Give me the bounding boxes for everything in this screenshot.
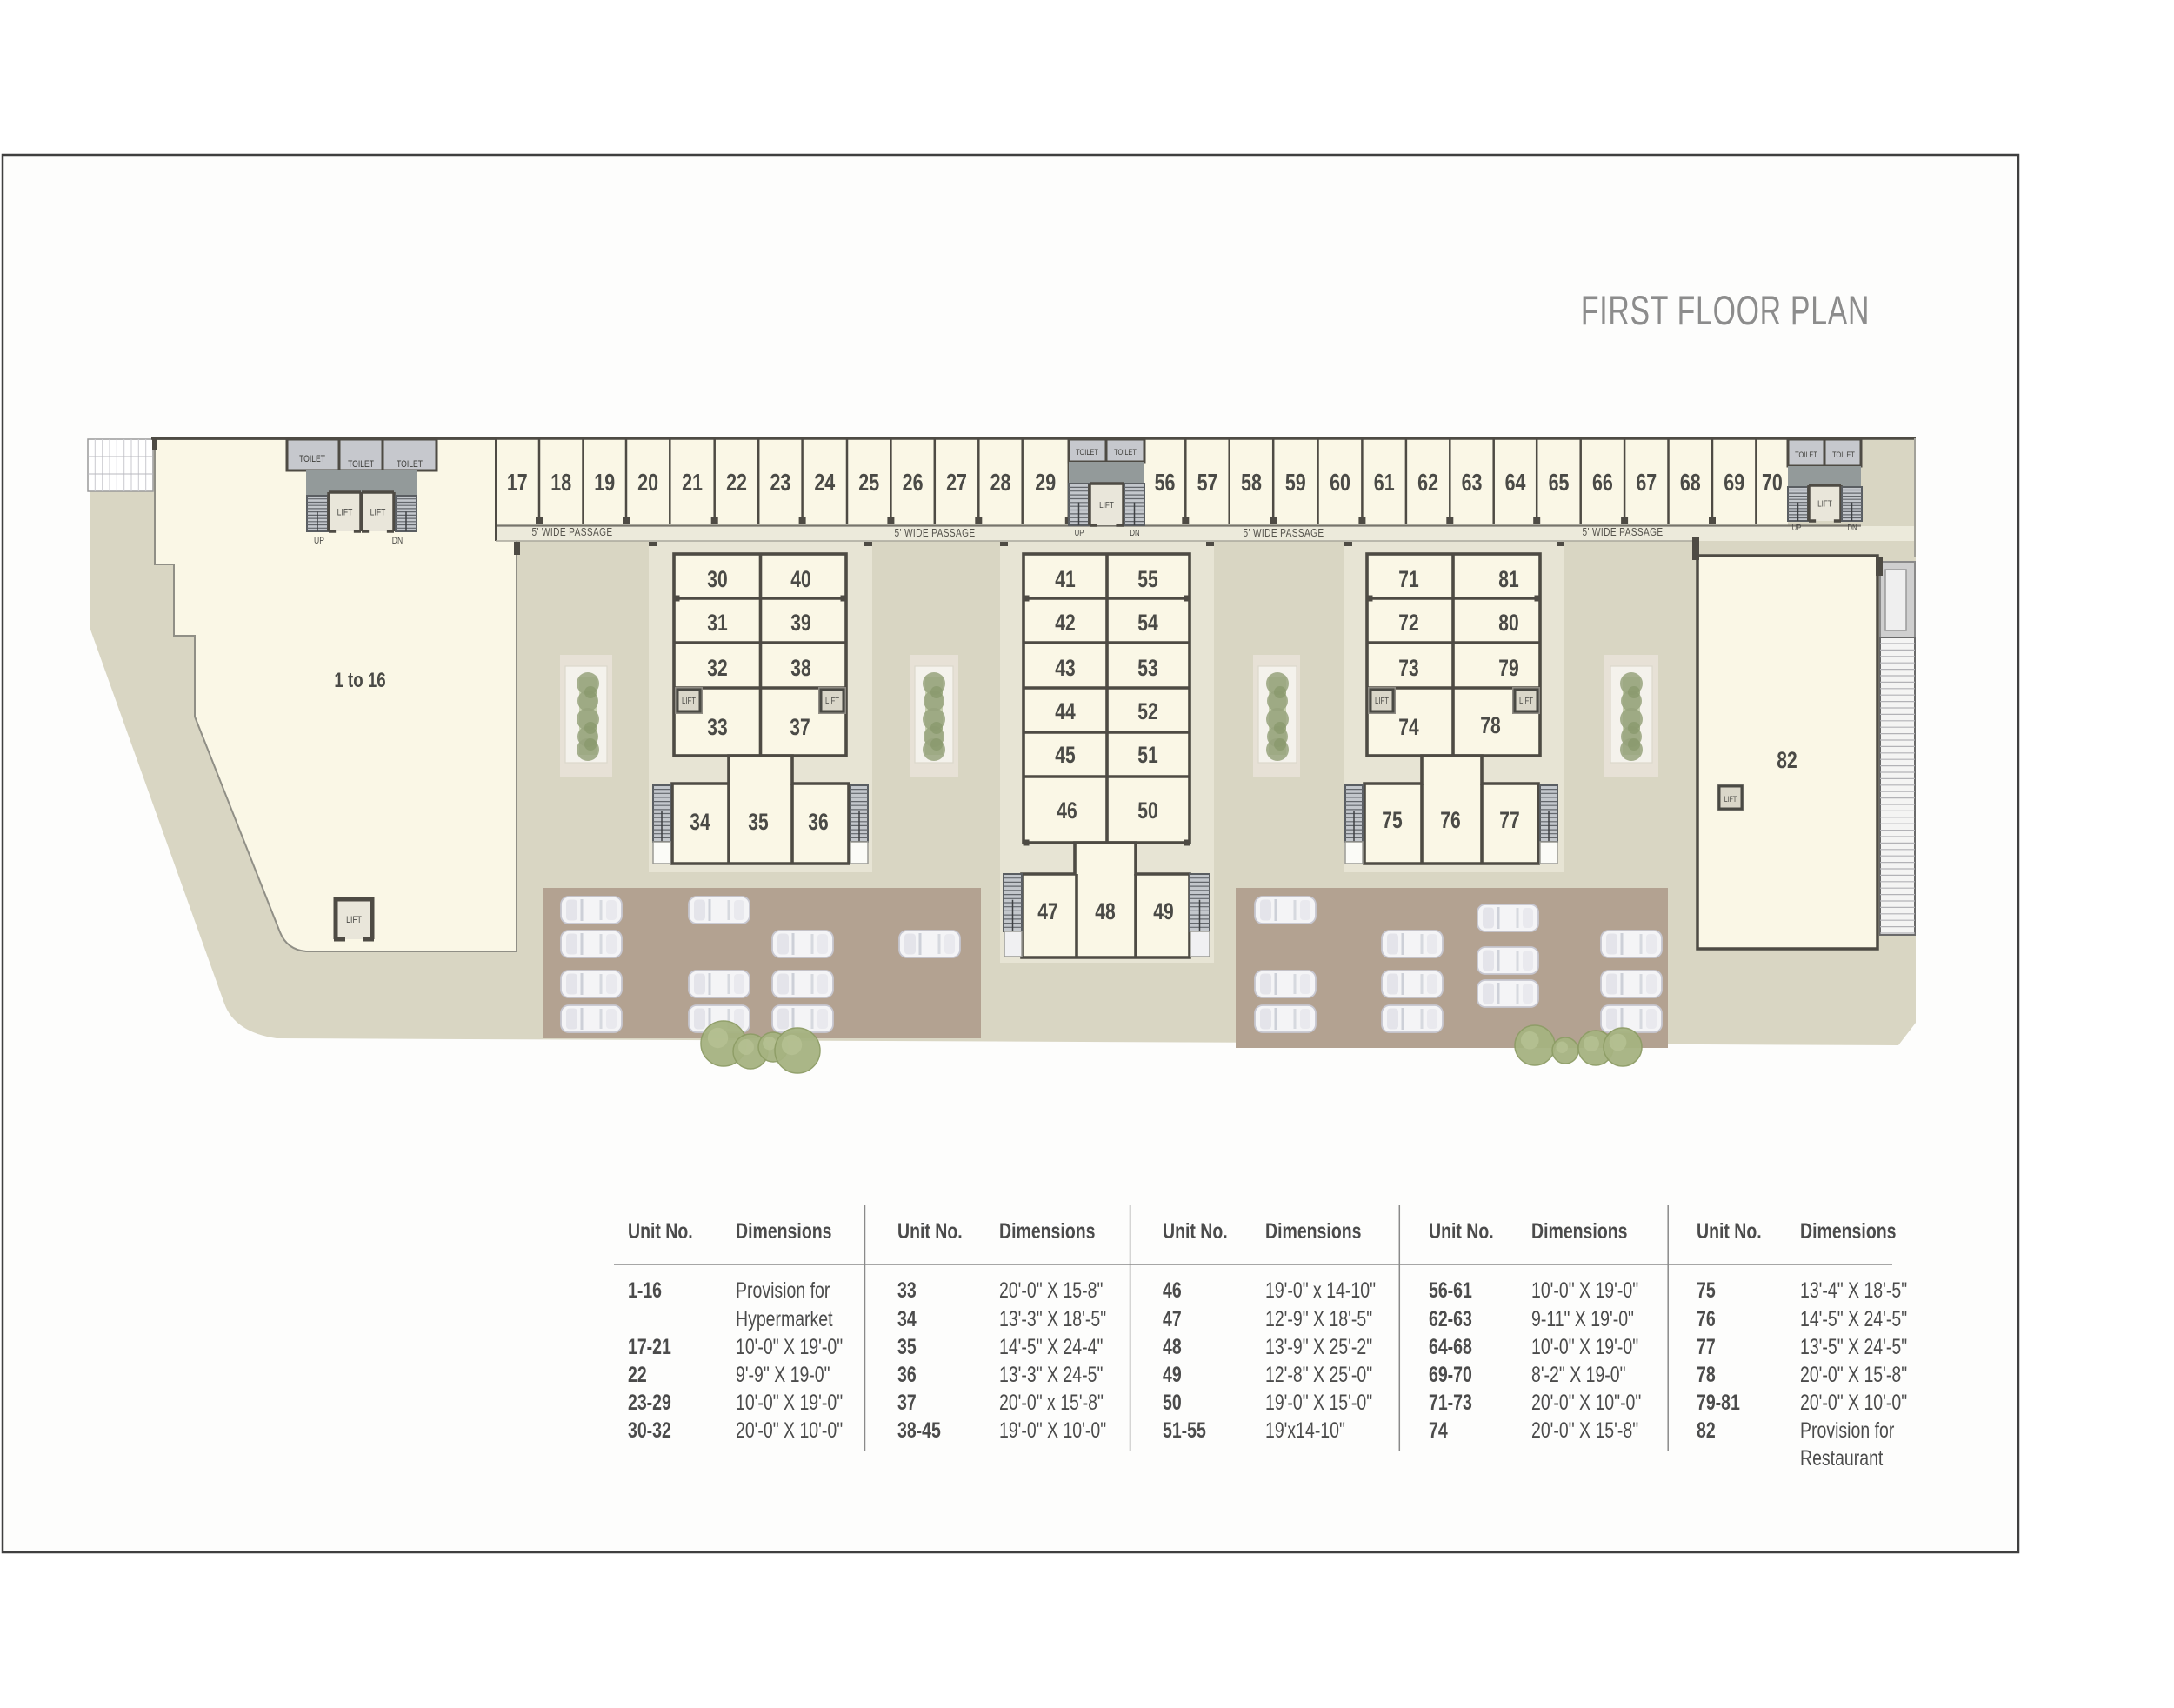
svg-text:5' WIDE PASSAGE: 5' WIDE PASSAGE <box>1582 526 1663 538</box>
svg-text:LIFT: LIFT <box>346 915 362 925</box>
svg-text:55: 55 <box>1137 567 1157 593</box>
svg-text:LIFT: LIFT <box>337 508 353 518</box>
svg-text:76: 76 <box>1697 1307 1716 1331</box>
svg-text:38: 38 <box>790 656 810 682</box>
svg-text:10'-0" X 19'-0": 10'-0" X 19'-0" <box>1531 1278 1638 1303</box>
svg-text:UP: UP <box>1075 528 1084 537</box>
svg-text:34: 34 <box>897 1307 917 1331</box>
svg-text:60: 60 <box>1330 470 1350 497</box>
svg-text:71: 71 <box>1398 567 1418 593</box>
svg-text:29: 29 <box>1035 470 1056 497</box>
svg-text:24: 24 <box>814 470 835 497</box>
svg-text:1 to 16: 1 to 16 <box>334 669 385 692</box>
svg-text:TOILET: TOILET <box>1832 450 1855 459</box>
svg-text:75: 75 <box>1382 808 1402 834</box>
svg-text:74: 74 <box>1398 715 1419 741</box>
svg-text:43: 43 <box>1055 656 1075 682</box>
svg-text:20'-0" X 10"-0": 20'-0" X 10"-0" <box>1531 1391 1641 1415</box>
svg-text:TOILET: TOILET <box>1114 447 1137 457</box>
svg-text:DN: DN <box>1130 528 1139 537</box>
svg-text:13'-3" X 24-5": 13'-3" X 24-5" <box>999 1363 1103 1387</box>
svg-text:13'-3" X 18'-5": 13'-3" X 18'-5" <box>999 1307 1106 1331</box>
svg-text:TOILET: TOILET <box>348 459 374 470</box>
svg-text:LIFT: LIFT <box>370 508 386 518</box>
svg-text:54: 54 <box>1137 610 1158 637</box>
svg-text:20'-0" x 15'-8": 20'-0" x 15'-8" <box>999 1391 1104 1415</box>
svg-text:LIFT: LIFT <box>682 696 696 705</box>
svg-text:33: 33 <box>897 1278 917 1303</box>
svg-text:22: 22 <box>628 1363 647 1387</box>
svg-text:75: 75 <box>1697 1278 1716 1303</box>
svg-text:13'-9" X 25'-2": 13'-9" X 25'-2" <box>1265 1335 1372 1359</box>
svg-text:67: 67 <box>1636 470 1657 497</box>
svg-text:Dimensions: Dimensions <box>1800 1219 1896 1244</box>
svg-text:25: 25 <box>858 470 879 497</box>
svg-text:LIFT: LIFT <box>1817 497 1832 508</box>
svg-text:20'-0" X 15'-8": 20'-0" X 15'-8" <box>1800 1363 1907 1387</box>
svg-text:56: 56 <box>1155 470 1176 497</box>
svg-text:LIFT: LIFT <box>825 696 839 705</box>
svg-text:37: 37 <box>897 1391 917 1415</box>
svg-text:9'-9" X 19-0": 9'-9" X 19-0" <box>736 1363 830 1387</box>
svg-text:68: 68 <box>1680 470 1701 497</box>
svg-text:47: 47 <box>1163 1307 1182 1331</box>
svg-text:48: 48 <box>1163 1335 1182 1359</box>
svg-text:26: 26 <box>903 470 924 497</box>
svg-text:19'-0" x 14-10": 19'-0" x 14-10" <box>1265 1278 1376 1303</box>
svg-text:65: 65 <box>1549 470 1570 497</box>
svg-text:30-32: 30-32 <box>628 1418 671 1443</box>
svg-text:TOILET: TOILET <box>1795 450 1817 459</box>
svg-text:76: 76 <box>1440 808 1460 834</box>
svg-text:69: 69 <box>1724 470 1744 497</box>
svg-text:14'-5" X 24'-5": 14'-5" X 24'-5" <box>1800 1307 1907 1331</box>
svg-text:19: 19 <box>594 470 615 497</box>
svg-text:10'-0" X 19'-0": 10'-0" X 19'-0" <box>736 1335 843 1359</box>
svg-text:70: 70 <box>1762 470 1783 497</box>
svg-text:12'-9" X 18'-5": 12'-9" X 18'-5" <box>1265 1307 1372 1331</box>
svg-text:39: 39 <box>790 610 810 637</box>
svg-text:74: 74 <box>1429 1418 1448 1443</box>
svg-text:35: 35 <box>897 1335 917 1359</box>
svg-text:Unit No.: Unit No. <box>1163 1219 1228 1244</box>
svg-text:17: 17 <box>507 470 528 497</box>
svg-text:5' WIDE PASSAGE: 5' WIDE PASSAGE <box>894 527 975 539</box>
svg-text:TOILET: TOILET <box>299 454 325 464</box>
svg-text:Unit No.: Unit No. <box>628 1219 693 1244</box>
svg-text:TOILET: TOILET <box>397 459 423 470</box>
svg-text:56-61: 56-61 <box>1429 1278 1472 1303</box>
svg-text:33: 33 <box>707 715 727 741</box>
svg-text:Unit No.: Unit No. <box>897 1219 963 1244</box>
svg-text:27: 27 <box>946 470 967 497</box>
svg-text:FIRST FLOOR PLAN: FIRST FLOOR PLAN <box>1581 288 1870 334</box>
svg-text:45: 45 <box>1055 743 1075 769</box>
svg-text:20: 20 <box>637 470 658 497</box>
svg-text:12'-8" X 25'-0": 12'-8" X 25'-0" <box>1265 1363 1372 1387</box>
svg-text:47: 47 <box>1037 899 1057 925</box>
svg-text:Restaurant: Restaurant <box>1800 1446 1884 1471</box>
svg-text:Unit No.: Unit No. <box>1697 1219 1762 1244</box>
svg-text:13'-4" X 18'-5": 13'-4" X 18'-5" <box>1800 1278 1907 1303</box>
svg-text:Dimensions: Dimensions <box>1265 1219 1361 1244</box>
svg-text:Unit No.: Unit No. <box>1429 1219 1494 1244</box>
svg-text:77: 77 <box>1697 1335 1716 1359</box>
svg-text:79: 79 <box>1498 656 1518 682</box>
svg-text:31: 31 <box>707 610 727 637</box>
svg-text:50: 50 <box>1163 1391 1182 1415</box>
svg-text:Provision for: Provision for <box>736 1278 830 1303</box>
svg-text:78: 78 <box>1697 1363 1716 1387</box>
svg-text:5' WIDE PASSAGE: 5' WIDE PASSAGE <box>1243 527 1324 539</box>
svg-text:50: 50 <box>1137 798 1157 824</box>
svg-text:73: 73 <box>1398 656 1418 682</box>
svg-text:44: 44 <box>1055 699 1076 725</box>
svg-text:9-11" X 19'-0": 9-11" X 19'-0" <box>1531 1307 1634 1331</box>
svg-text:79-81: 79-81 <box>1697 1391 1740 1415</box>
svg-text:53: 53 <box>1137 656 1157 682</box>
svg-text:78: 78 <box>1480 713 1500 739</box>
svg-text:62-63: 62-63 <box>1429 1307 1472 1331</box>
svg-text:42: 42 <box>1055 610 1075 637</box>
svg-text:Dimensions: Dimensions <box>999 1219 1095 1244</box>
svg-text:52: 52 <box>1137 699 1157 725</box>
svg-text:20'-0" X 10'-0": 20'-0" X 10'-0" <box>1800 1391 1907 1415</box>
svg-text:28: 28 <box>990 470 1011 497</box>
svg-text:23: 23 <box>770 470 790 497</box>
svg-text:UP: UP <box>314 536 324 546</box>
svg-text:Dimensions: Dimensions <box>1531 1219 1627 1244</box>
svg-text:Dimensions: Dimensions <box>736 1219 831 1244</box>
svg-text:49: 49 <box>1153 899 1173 925</box>
svg-text:14'-5" X 24-4": 14'-5" X 24-4" <box>999 1335 1103 1359</box>
svg-text:17-21: 17-21 <box>628 1335 671 1359</box>
svg-text:36: 36 <box>808 810 828 836</box>
svg-text:71-73: 71-73 <box>1429 1391 1472 1415</box>
svg-text:64-68: 64-68 <box>1429 1335 1472 1359</box>
svg-text:19'-0" X 10'-0": 19'-0" X 10'-0" <box>999 1418 1106 1443</box>
svg-text:18: 18 <box>550 470 571 497</box>
svg-text:69-70: 69-70 <box>1429 1363 1472 1387</box>
svg-text:59: 59 <box>1285 470 1306 497</box>
svg-text:61: 61 <box>1374 470 1395 497</box>
svg-text:5' WIDE PASSAGE: 5' WIDE PASSAGE <box>531 526 612 538</box>
svg-text:34: 34 <box>690 810 710 836</box>
svg-text:46: 46 <box>1057 798 1077 824</box>
svg-text:UP: UP <box>1792 523 1802 532</box>
svg-text:LIFT: LIFT <box>1375 696 1389 705</box>
svg-text:51: 51 <box>1137 743 1157 769</box>
svg-text:40: 40 <box>790 567 810 593</box>
svg-text:TOILET: TOILET <box>1076 447 1098 457</box>
svg-text:10'-0" X 19'-0": 10'-0" X 19'-0" <box>1531 1335 1638 1359</box>
svg-text:10'-0" X 19'-0": 10'-0" X 19'-0" <box>736 1391 843 1415</box>
svg-text:30: 30 <box>707 567 727 593</box>
svg-text:57: 57 <box>1197 470 1218 497</box>
svg-text:38-45: 38-45 <box>897 1418 941 1443</box>
svg-text:1-16: 1-16 <box>628 1278 662 1303</box>
svg-text:13'-5" X 24'-5": 13'-5" X 24'-5" <box>1800 1335 1907 1359</box>
svg-text:49: 49 <box>1163 1363 1182 1387</box>
svg-text:8'-2" X 19-0": 8'-2" X 19-0" <box>1531 1363 1626 1387</box>
svg-text:48: 48 <box>1095 899 1115 925</box>
svg-text:Hypermarket: Hypermarket <box>736 1307 833 1331</box>
svg-text:22: 22 <box>726 470 747 497</box>
svg-text:77: 77 <box>1499 808 1519 834</box>
svg-text:82: 82 <box>1777 748 1797 774</box>
svg-text:36: 36 <box>897 1363 917 1387</box>
svg-text:LIFT: LIFT <box>1724 795 1737 804</box>
svg-text:35: 35 <box>748 810 768 836</box>
svg-text:80: 80 <box>1498 610 1518 637</box>
svg-text:82: 82 <box>1697 1418 1716 1443</box>
svg-text:LIFT: LIFT <box>1519 696 1533 705</box>
svg-text:DN: DN <box>392 536 403 546</box>
svg-text:62: 62 <box>1417 470 1438 497</box>
svg-text:32: 32 <box>707 656 727 682</box>
svg-text:LIFT: LIFT <box>1099 499 1114 510</box>
svg-text:20'-0" X 10'-0": 20'-0" X 10'-0" <box>736 1418 843 1443</box>
svg-text:64: 64 <box>1505 470 1526 497</box>
svg-text:23-29: 23-29 <box>628 1391 671 1415</box>
svg-text:58: 58 <box>1241 470 1262 497</box>
svg-text:Provision for: Provision for <box>1800 1418 1895 1443</box>
svg-text:66: 66 <box>1592 470 1613 497</box>
svg-text:72: 72 <box>1398 610 1418 637</box>
svg-text:37: 37 <box>790 715 810 741</box>
svg-text:81: 81 <box>1498 567 1518 593</box>
svg-text:41: 41 <box>1055 567 1075 593</box>
svg-text:DN: DN <box>1847 523 1857 532</box>
svg-text:20'-0" X 15-8": 20'-0" X 15-8" <box>999 1278 1103 1303</box>
svg-text:51-55: 51-55 <box>1163 1418 1206 1443</box>
svg-text:19'x14-10": 19'x14-10" <box>1265 1418 1345 1443</box>
svg-text:63: 63 <box>1462 470 1483 497</box>
svg-text:21: 21 <box>682 470 703 497</box>
svg-text:19'-0" X 15'-0": 19'-0" X 15'-0" <box>1265 1391 1372 1415</box>
svg-text:46: 46 <box>1163 1278 1182 1303</box>
svg-text:20'-0" X 15'-8": 20'-0" X 15'-8" <box>1531 1418 1638 1443</box>
